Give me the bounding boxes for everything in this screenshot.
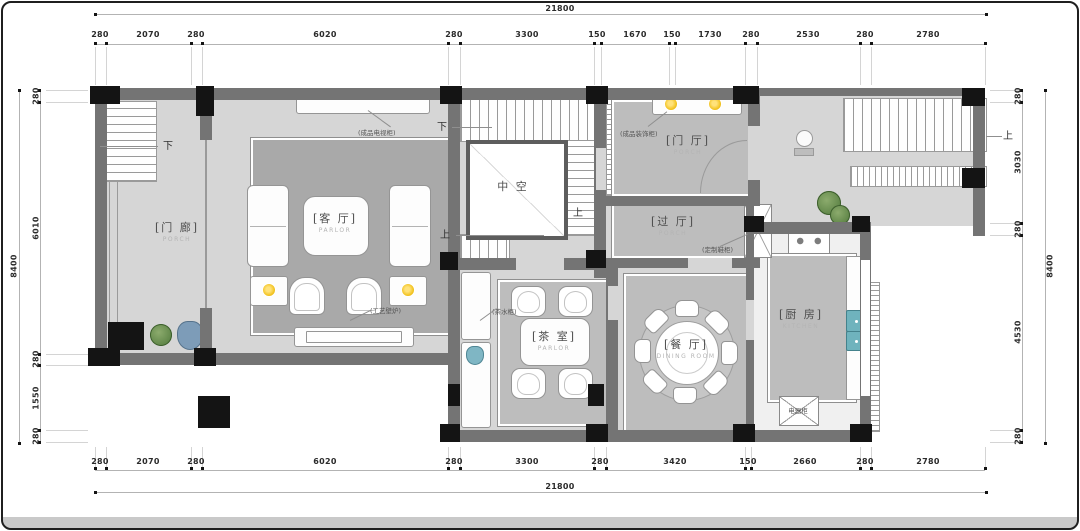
room-name-en: KITCHEN — [779, 323, 823, 330]
dim-bottom-seg: 150 — [739, 457, 757, 466]
tea-chair-2 — [558, 286, 593, 317]
dim-bottom-seg: 280 — [591, 457, 609, 466]
wall — [95, 88, 107, 365]
dim-bottom-seg: 2780 — [916, 457, 939, 466]
armchair-left — [289, 277, 325, 315]
sofa-right — [389, 185, 431, 267]
dim-right-seg: 280 — [1014, 87, 1023, 105]
column — [588, 384, 604, 406]
room-name: [厨 房] — [779, 306, 823, 322]
dim-top-seg: 280 — [187, 30, 205, 39]
fireplace-inner — [306, 331, 402, 343]
dim-bottom-seg: 6020 — [313, 457, 336, 466]
porch-planter-block — [108, 322, 144, 350]
leader-line — [456, 235, 544, 236]
dim-top-seg: 2530 — [796, 30, 819, 39]
room-name: [门 廊] — [155, 219, 199, 235]
porch-stair-rail — [109, 180, 118, 326]
room-name: [门 厅] — [666, 132, 710, 148]
porch-plant — [150, 324, 172, 346]
stair-flight-top — [460, 93, 602, 142]
dim-bottom-seg: 280 — [856, 457, 874, 466]
wall — [200, 308, 212, 353]
column — [850, 424, 872, 442]
dim-top-seg: 6020 — [313, 30, 336, 39]
dining-chair — [673, 387, 697, 404]
dim-bottom-seg: 280 — [445, 457, 463, 466]
door-opening — [608, 286, 618, 320]
column — [440, 86, 462, 104]
door-opening — [596, 148, 606, 190]
dim-extensions-top — [95, 47, 96, 85]
column — [733, 424, 755, 442]
bottom-bar — [3, 517, 1077, 528]
dim-line-bottom-total — [95, 492, 985, 493]
tea-cabinet — [461, 272, 491, 340]
wall — [95, 353, 460, 365]
annotation-fireplace: (工艺壁炉) — [370, 305, 401, 315]
column — [586, 86, 608, 104]
stair-mark-patio-up: 上 — [1003, 127, 1013, 142]
annotation-shoe-cabinet: (定制鞋柜) — [702, 244, 733, 254]
door-opening — [748, 126, 760, 180]
patio-deck-stairs — [843, 98, 987, 152]
patio-sculpture — [796, 130, 813, 147]
wall — [594, 196, 760, 206]
column — [586, 424, 608, 442]
dim-ticks-left-total — [18, 89, 21, 92]
room-label-porch: [门 廊] PORCH — [155, 219, 199, 243]
dim-ticks-top — [94, 42, 97, 45]
column — [962, 88, 985, 106]
dim-bottom-seg: 2660 — [793, 457, 816, 466]
column — [852, 216, 870, 232]
dim-right-seg: 3030 — [1014, 150, 1023, 173]
dim-top-seg: 150 — [588, 30, 606, 39]
stair-mark-up-left: 上 — [440, 226, 450, 241]
dim-top-total: 21800 — [545, 4, 574, 13]
wall — [448, 430, 868, 442]
annotation-tv-cabinet: (成品电视柜) — [358, 127, 396, 137]
dim-line-top — [95, 44, 985, 45]
leader-line — [100, 146, 158, 147]
dim-top-seg: 280 — [856, 30, 874, 39]
room-name-en: PORCH — [666, 149, 710, 156]
room-name-en: DINING ROOM — [657, 353, 716, 360]
dining-chair — [634, 339, 651, 363]
dim-left-total: 8400 — [10, 254, 19, 277]
dim-ticks-bottom — [94, 467, 97, 470]
room-label-void: 中 空 — [497, 178, 529, 194]
wash-basin — [466, 346, 484, 365]
lamp-left — [262, 283, 276, 297]
room-name: [客 厅] — [313, 210, 357, 226]
dim-right-seg: 4530 — [1014, 320, 1023, 343]
column — [586, 250, 606, 268]
column — [962, 168, 985, 188]
dining-chair — [675, 300, 699, 317]
dim-bottom-seg: 280 — [187, 457, 205, 466]
dim-top-seg: 2070 — [136, 30, 159, 39]
dining-chair — [721, 341, 738, 365]
dim-bottom-total: 21800 — [545, 482, 574, 491]
room-name-en: PORCH — [651, 230, 695, 237]
dim-top-seg: 150 — [663, 30, 681, 39]
door-opening — [688, 258, 732, 268]
dim-ticks-right-total — [1044, 89, 1047, 92]
dim-top-seg: 2780 — [916, 30, 939, 39]
dim-left-seg: 280 — [32, 350, 41, 368]
dim-top-seg: 280 — [445, 30, 463, 39]
dim-right-seg: 280 — [1014, 427, 1023, 445]
column — [733, 86, 759, 104]
floor-plan-canvas: [门 廊] PORCH [客 厅] PARLOR 中 空 [门 厅] PORCH… — [0, 0, 1080, 531]
wall — [95, 88, 760, 100]
column — [198, 396, 230, 428]
dim-extensions-left — [46, 90, 88, 91]
leader-line — [986, 136, 1002, 137]
dim-line-left-total — [19, 90, 20, 442]
dim-left-seg: 1550 — [32, 386, 41, 409]
dim-ticks-bottom-total — [94, 491, 97, 494]
room-name: 中 空 — [497, 178, 529, 194]
room-label-tea-room: [茶 室] PARLOR — [532, 328, 576, 352]
room-label-entry: [门 厅] PORCH — [666, 132, 710, 156]
room-label-passage: [过 厅] PORCH — [651, 213, 695, 237]
sofa-left — [247, 185, 289, 267]
dim-top-seg: 280 — [742, 30, 760, 39]
dim-left-seg: 280 — [32, 427, 41, 445]
leader-line — [452, 127, 492, 128]
room-label-dining: [餐 厅] DINING ROOM — [657, 336, 716, 360]
room-name: [过 厅] — [651, 213, 695, 229]
room-name-en: PORCH — [155, 236, 199, 243]
column — [440, 424, 460, 442]
wall — [973, 88, 985, 236]
dim-line-top-total — [95, 14, 985, 15]
dim-bottom-seg: 3300 — [515, 457, 538, 466]
door-opening — [746, 300, 754, 340]
dim-top-seg: 3300 — [515, 30, 538, 39]
dim-top-seg: 1730 — [698, 30, 721, 39]
stair-mark-up-right: 上 — [573, 204, 583, 219]
stair-mark-down: 下 — [437, 118, 447, 133]
dim-bottom-seg: 2070 — [136, 457, 159, 466]
annotation-appliance-cabinet: 电器柜 — [788, 405, 808, 415]
window-opening — [861, 260, 870, 396]
stair-mark-porch-down: 下 — [163, 137, 173, 152]
room-name: [茶 室] — [532, 328, 576, 344]
dim-left-seg: 280 — [32, 87, 41, 105]
column — [448, 384, 460, 406]
room-name: [餐 厅] — [657, 336, 716, 352]
door-opening — [516, 258, 564, 270]
column — [88, 348, 120, 366]
dim-right-total: 8400 — [1046, 254, 1055, 277]
wall — [760, 88, 985, 96]
dim-top-seg: 280 — [91, 30, 109, 39]
dim-ticks-top-total — [94, 13, 97, 16]
dim-bottom-seg: 3420 — [663, 457, 686, 466]
glass-partition — [205, 140, 207, 308]
column — [194, 348, 216, 366]
room-label-kitchen: [厨 房] KITCHEN — [779, 306, 823, 330]
dim-line-bottom — [95, 470, 985, 471]
column — [196, 86, 214, 116]
dim-right-seg: 280 — [1014, 220, 1023, 238]
column — [744, 216, 764, 232]
dim-bottom-seg: 280 — [91, 457, 109, 466]
room-label-parlor: [客 厅] PARLOR — [313, 210, 357, 234]
room-name-en: PARLOR — [532, 345, 576, 352]
column — [90, 86, 120, 104]
wall — [594, 258, 760, 268]
patio-sculpture-base — [794, 148, 814, 156]
room-name-en: PARLOR — [313, 227, 357, 234]
lamp-right — [401, 283, 415, 297]
tea-chair-3 — [511, 368, 546, 399]
dim-line-right — [1022, 90, 1023, 442]
dim-left-seg: 6010 — [32, 216, 41, 239]
dim-top-seg: 1670 — [623, 30, 646, 39]
annotation-deco-cabinet: (成品装饰柜) — [620, 128, 658, 138]
column — [440, 252, 458, 270]
